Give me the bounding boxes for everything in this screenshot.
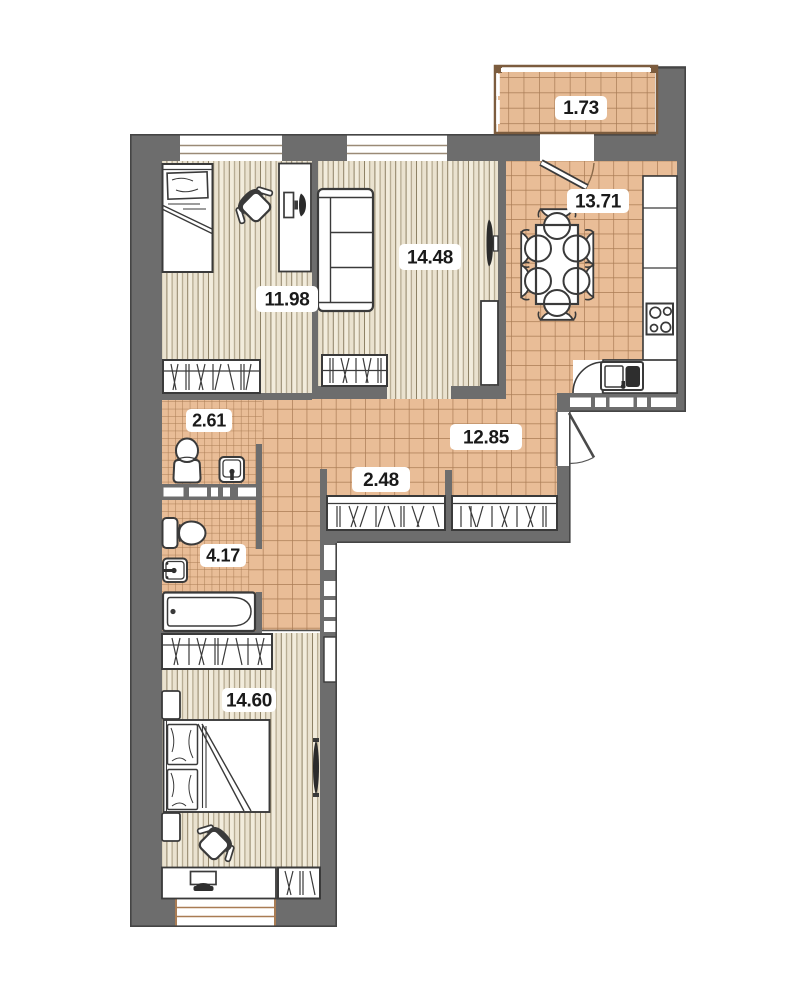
svg-text:14.60: 14.60 <box>226 691 272 712</box>
svg-text:11.98: 11.98 <box>265 290 310 311</box>
svg-text:13.71: 13.71 <box>575 192 622 213</box>
svg-text:1.73: 1.73 <box>563 98 599 119</box>
svg-text:2.48: 2.48 <box>363 470 399 491</box>
svg-text:12.85: 12.85 <box>463 428 510 449</box>
svg-text:2.61: 2.61 <box>192 411 226 431</box>
svg-text:14.48: 14.48 <box>407 248 453 269</box>
svg-text:4.17: 4.17 <box>206 546 240 566</box>
